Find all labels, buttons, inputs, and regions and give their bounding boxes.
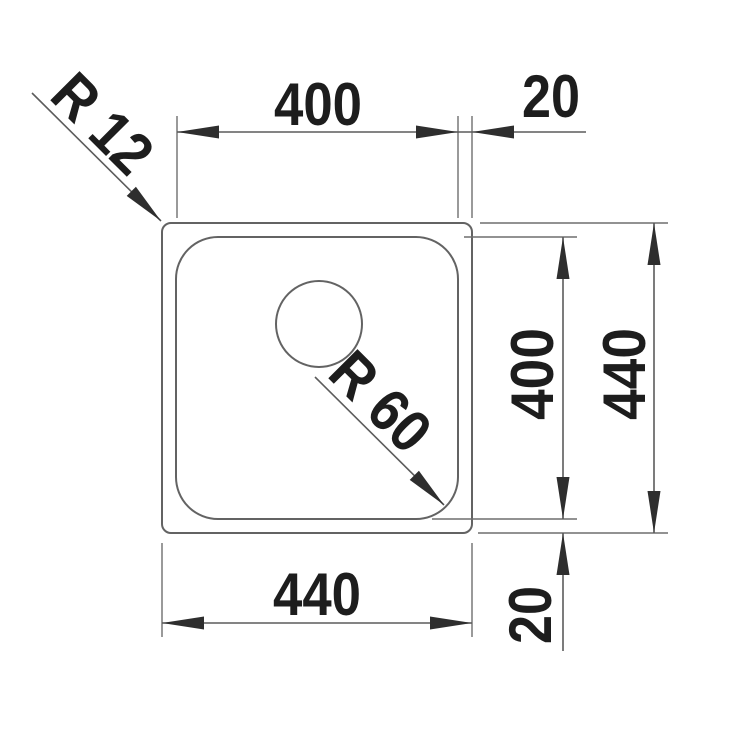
dimension-arrowhead	[557, 477, 570, 519]
radius-arrowhead	[410, 471, 449, 510]
dimension-arrowhead	[557, 237, 570, 279]
radius-label-bowl-corner: R 60	[317, 338, 445, 466]
dimension-arrowhead	[648, 223, 661, 265]
radius-label-outer-corner: R 12	[39, 60, 167, 188]
technical-drawing-canvas: 400 20 400 440 440 20 R 12 R 60	[0, 0, 750, 750]
dimension-arrowhead	[430, 617, 472, 630]
dimension-arrowhead	[648, 491, 661, 533]
dimension-arrowhead	[557, 533, 570, 575]
dim-label-top-width: 400	[274, 71, 362, 138]
sink-dimension-diagram: 400 20 400 440 440 20 R 12 R 60	[0, 0, 750, 750]
dimension-arrowhead	[472, 126, 514, 139]
dim-label-outer-height: 440	[591, 328, 658, 420]
dim-label-bottom-width: 440	[273, 561, 361, 628]
dim-label-top-right-offset: 20	[522, 63, 580, 130]
dim-label-inner-height: 400	[499, 328, 566, 420]
dimension-arrowhead	[177, 126, 219, 139]
dimension-arrowhead	[162, 617, 204, 630]
dim-label-bottom-right-offset: 20	[497, 586, 564, 644]
radius-arrowhead	[127, 187, 166, 226]
dimension-arrowhead	[416, 126, 458, 139]
